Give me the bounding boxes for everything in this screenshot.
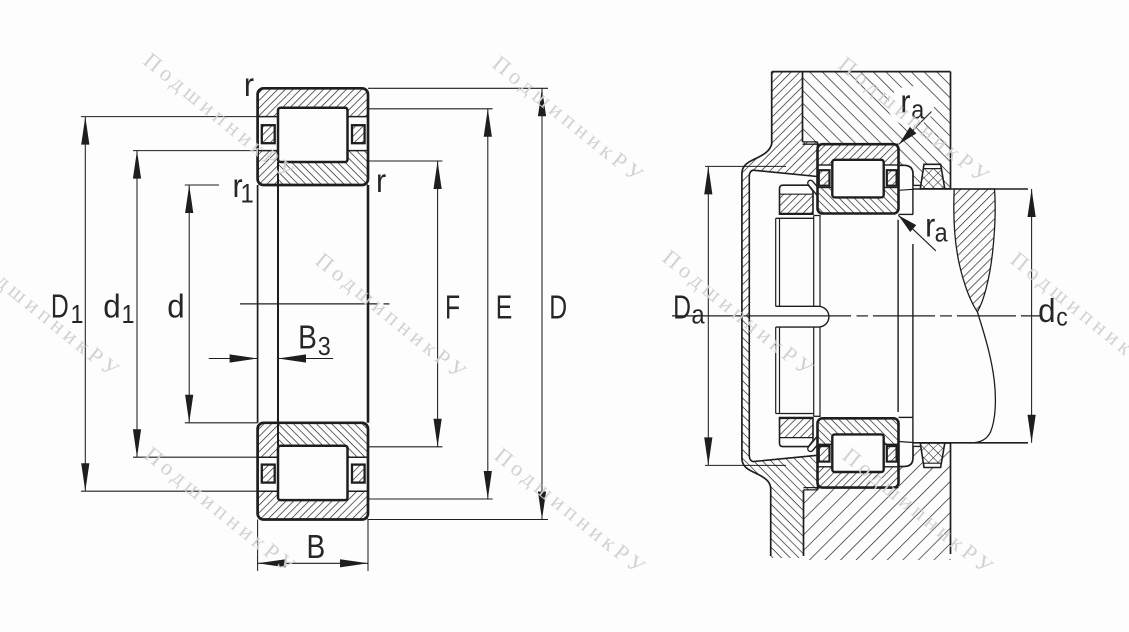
svg-text:a: a	[691, 300, 705, 329]
svg-text:F: F	[445, 290, 460, 326]
svg-text:1: 1	[241, 179, 254, 208]
svg-text:a: a	[935, 219, 948, 247]
svg-text:1: 1	[122, 301, 135, 329]
svg-text:B: B	[298, 319, 317, 356]
svg-text:d: d	[103, 288, 120, 325]
svg-text:r: r	[244, 66, 255, 103]
svg-text:d: d	[167, 288, 184, 325]
svg-text:3: 3	[318, 333, 331, 361]
svg-text:E: E	[496, 290, 513, 326]
svg-text:D: D	[549, 290, 567, 326]
svg-text:B: B	[307, 529, 326, 566]
svg-text:D: D	[673, 290, 691, 326]
svg-text:r: r	[376, 162, 387, 199]
